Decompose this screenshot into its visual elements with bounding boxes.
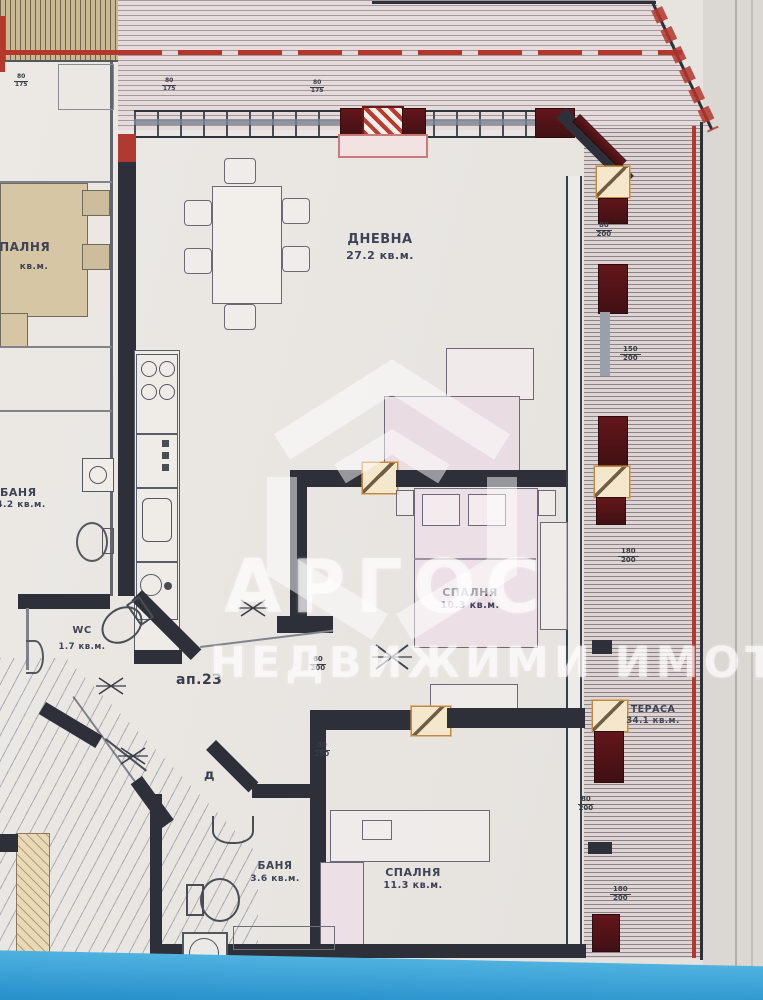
door-swing-marker [118,746,148,766]
sill-block [592,640,612,654]
dimension-label: 80175 [162,78,176,92]
chair [184,248,212,274]
blanket-line [414,558,536,560]
burner [159,361,175,377]
neighbor-pillow [82,244,110,270]
chair [224,304,256,330]
masonry-block [594,731,624,783]
column-marker [362,462,398,494]
wardrobe [540,522,568,630]
neighbor-bath-label: БАНЯ [0,486,48,500]
side-table [446,348,534,400]
dimension-label: 80200 [310,656,326,672]
neighbor-bedroom-label: СПАЛНЯ [0,240,70,256]
sill-block [588,842,612,854]
burner [159,384,175,400]
cabinet-knob [162,440,169,447]
wall-bedroom2-top [325,710,413,730]
cabinet-knob [162,452,169,459]
dimension-label: 150200 [620,346,641,362]
wall-bath-top [252,784,314,798]
bath-label: БАНЯ 3.6 кв.м. [238,860,312,885]
nightstand [538,490,556,516]
door-swing-marker [96,676,126,696]
balcony-rail [338,134,428,158]
neighbor-wall [0,346,112,348]
terrace-label: ТЕРАСА 34.1 кв.м. [614,704,692,727]
duct-outline [233,926,335,950]
bedroom2-label: СПАЛНЯ 11.3 кв.м. [376,866,450,893]
toilet-tank [102,528,114,554]
neighbor-hatch-edge [0,60,118,62]
sofa [384,396,520,474]
margin-line [735,0,737,1000]
dimension-label: 80175 [14,74,28,88]
door-label: д [204,768,215,783]
burner [141,361,157,377]
kitchen-end-wall [134,650,182,664]
wc-area: 1.7 кв.м. [46,642,118,653]
wall-bedroom2-top [447,708,585,728]
apartment-number: ап.23 [176,672,222,688]
bath-sink [212,816,254,844]
masonry-block [598,264,628,314]
wc-label: WC [64,624,100,637]
floor-plan: СПАЛНЯ кв.м. БАНЯ 4.2 кв.м. ДНЕВНА 27.2 … [0,0,763,1000]
wall-bedroom1-left [290,470,307,620]
pillow [422,494,460,526]
wall-bedroom2-bottom [318,944,586,958]
pillow [468,494,506,526]
dimension-label: 180200 [610,886,631,902]
wardrobe-drawer [362,820,392,840]
neighbor-wall [0,410,112,412]
column-marker [596,166,630,198]
neighbor-step [0,313,28,347]
masonry-block [592,914,620,952]
nightstand [396,490,414,516]
dimension-label: 80200 [596,222,612,238]
red-column [118,134,136,162]
wall-bath-left [150,794,162,954]
masonry-block [596,497,626,525]
cabinet-knob [162,464,169,471]
washing-machine-door [89,466,107,484]
kitchen-cabinet [136,434,178,488]
wall-bath-diagonal [206,740,258,792]
toilet-icon [200,878,240,922]
outer-boundary [372,1,656,4]
neighbor-pillow [82,190,110,216]
room-name: СПАЛНЯ [0,240,70,256]
terrace-hatch-right [584,128,700,958]
sink-basin [142,498,172,542]
paper-margin [703,0,763,1000]
dining-table [212,186,282,304]
red-boundary-line [0,50,118,55]
masonry-block [598,416,628,468]
dimension-label: 80200 [314,742,330,758]
neighbor-bedroom-area: кв.м. [4,262,64,274]
terrace-red-line [692,126,696,958]
red-boundary-line [0,16,5,72]
chair [282,198,310,224]
shaft-column [16,833,50,955]
living-room-label: ДНЕВНА 27.2 кв.м. [300,232,460,263]
margin-line [751,0,753,1000]
wardrobe [330,810,490,862]
column-marker [411,706,451,736]
mullion-block [600,312,610,376]
wall-stub [0,834,18,852]
neighbor-wall [110,62,113,596]
burner [141,384,157,400]
window-glazing-right [566,176,582,948]
dimension-label: 80200 [578,796,594,812]
neighbor-bath-area: 4.2 кв.м. [0,500,54,512]
chair [184,200,212,226]
neighbor-balcony [58,64,114,110]
chair [224,158,256,184]
door-swing-marker [238,598,268,618]
wall-wc-top [18,594,110,609]
dimension-label: 80175 [310,80,324,94]
corridor-line [200,630,333,648]
dishwasher-knob [164,582,172,590]
dimension-label: 180200 [618,548,639,564]
terrace-outer-edge [700,122,703,960]
column-marker [594,466,630,498]
bedroom1-label: СПАЛНЯ 10.3 кв.м. [420,586,520,613]
wall-bedroom1-top [396,470,566,487]
column-marker [362,106,404,137]
door-swing-marker [372,642,412,672]
red-dashed-line [118,50,682,55]
